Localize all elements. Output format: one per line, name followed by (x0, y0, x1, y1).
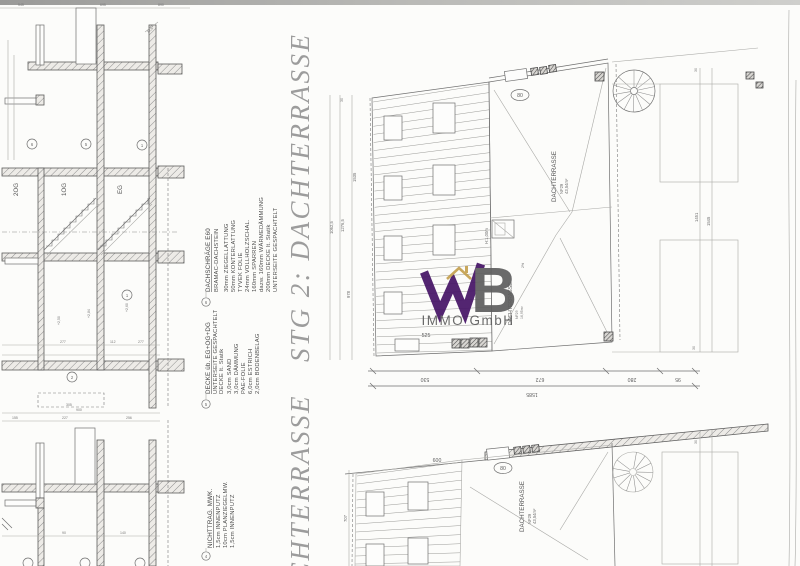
dim-label: 280 (628, 376, 637, 382)
dim-label: 545 (18, 3, 24, 7)
dim-label: 707 (343, 514, 348, 522)
level-mark: +2,60 (125, 303, 129, 312)
legend-ref-5: 5 (205, 402, 208, 407)
legend-line: 50mm KONTERLATTUNG (231, 220, 237, 292)
dim-tick: 30 (340, 98, 344, 102)
legend-line: 24mm VOLLHOLZSCHAL. (245, 219, 251, 292)
dim-label: 95 (675, 376, 681, 382)
svg-text:6: 6 (31, 142, 34, 147)
floor-label-eg: EG (117, 185, 124, 194)
section-drawing-upper: 545 695 890 (0, 3, 190, 408)
legend-line: 200mm DECKE lt. Statik (266, 224, 272, 292)
level-mark: +2,50 (57, 316, 61, 325)
room-area: 43,54m² (532, 508, 537, 524)
floor-label-1og: 1OG (61, 183, 68, 196)
dim-label: 1276,5 (340, 219, 345, 232)
legend-line: 10cm PLANZIEGELMW. (223, 481, 229, 548)
dim-tick: 30 (694, 440, 698, 444)
legend-ref-6: 6 (205, 300, 208, 305)
logo-subtitle: IMMO GmbH (422, 313, 515, 328)
floor-label-2og: 2OG (13, 183, 20, 196)
spiral-stair-upper (613, 70, 655, 112)
legend-line: BRAMAC-DACHSTEIN (214, 229, 220, 292)
dim-label: 1451 (694, 212, 699, 222)
room-stamp-1: DACHTERRASSE NF29 43,54m² (551, 151, 569, 202)
dim-label: 277 (60, 340, 66, 344)
legend-line: 1,5cm INNENPUTZ (230, 494, 236, 548)
legend-line: 3,0cm SAND (227, 358, 233, 394)
dim-label: 978 (346, 290, 351, 298)
scanned-plan-page: 545 695 890 (0, 0, 800, 566)
legend-line: 3,0cm DÄMMUNG (233, 343, 240, 394)
room-area: 16,95m² (520, 305, 524, 319)
dim-label: 890 (158, 3, 164, 7)
roof-terrace-plan-upper: 80 525 H:1,00m 2% DACHTERRASSE NF29 43,5… (329, 48, 763, 397)
dim-label: 277 (138, 340, 144, 344)
level-mark: +2,84 (87, 309, 91, 318)
dim-label: 1062,5 (329, 221, 334, 234)
legend-line: 6,0cm ESTRICH (248, 349, 254, 394)
dim-label: 672 (536, 376, 545, 382)
dim-label: 155 (12, 416, 18, 420)
svg-text:1: 1 (141, 143, 144, 148)
dim-total: 1585 (526, 391, 538, 397)
legend-line: TYVEK FOLIE (238, 252, 244, 292)
scan-edges (0, 0, 800, 566)
svg-text:5: 5 (85, 142, 88, 147)
logo-roof-icon (447, 266, 471, 279)
dim-label: 256 (126, 416, 132, 420)
sheet-title-lower: DACHTERRASSE (285, 394, 315, 566)
wb-immo-logo: B IMMO GmbH (422, 254, 518, 328)
svg-text:2: 2 (71, 375, 74, 380)
legend-line: DECKE lt. Statik (219, 349, 225, 394)
dim-525: 525 (422, 333, 431, 339)
legend-line: 30mm ZIEGELLATTUNG (224, 223, 230, 292)
blueprint-canvas: 545 695 890 (0, 0, 800, 566)
legend-line: UNTERSEITE GESPACHTELT (273, 207, 279, 292)
dim-label: 1545 (706, 216, 711, 226)
dim-80-circle: 80 (517, 93, 523, 99)
dim-tick: 30 (694, 68, 698, 72)
dim-label: 140 (120, 531, 126, 535)
legend-line: 1,5cm INNENPUTZ (216, 494, 222, 548)
room-area: 43,54m² (564, 178, 569, 194)
dim-label: 90 (62, 531, 66, 535)
dim-80-circle: 80 (500, 466, 506, 472)
legend-title-5: DECKE üb. EG+OG+DG (205, 322, 212, 394)
room-name: DACHTERRASSE (551, 151, 558, 202)
spiral-stair-lower (613, 452, 653, 492)
dim-label: 112 (110, 340, 116, 344)
room-name: DACHTERRASSE (519, 481, 526, 532)
legend-line: 160mm SPARREN (252, 241, 258, 292)
sheet-title-upper: STG 2: DACHTERRASSE (285, 33, 315, 362)
room-stamp: DACHTERRASSE NF29 43,54m² (519, 481, 537, 532)
construction-legend: 6 DACHSCHRÄGE E60 BRAMAC-DACHSTEIN 30mm … (202, 197, 279, 560)
section-drawing-lower: 900 155 227 256 90 140 (2, 408, 184, 566)
slope-note: 2% (521, 263, 525, 268)
roof-terrace-plan-lower: 80 600 DACHTERRASSE NF29 43,54m² 707 (343, 424, 768, 566)
dim-tick: 30 (692, 346, 696, 350)
legend-title-6: DACHSCHRÄGE E60 (205, 228, 212, 292)
legend-line: 2,0cm BODENBELAG (255, 333, 261, 394)
dim-label: 1535 (352, 172, 357, 182)
legend-ref-4: 4 (205, 554, 208, 559)
dim-label: 305 (66, 403, 72, 407)
legend-line: dazw. 160mm WÄRMEDÄMMUNG (258, 197, 265, 292)
dim-label: 227 (62, 416, 68, 420)
dim-label: 900 (76, 408, 82, 412)
dim-label: 695 (100, 3, 106, 7)
legend-line: PAE-FOLIE (241, 362, 247, 394)
dim-label: 530 (421, 376, 430, 382)
svg-text:1: 1 (126, 293, 129, 298)
legend-title-4: NICHTTRAG. MWK. (207, 489, 214, 548)
railing-height-note: H:1,00m (484, 228, 489, 244)
